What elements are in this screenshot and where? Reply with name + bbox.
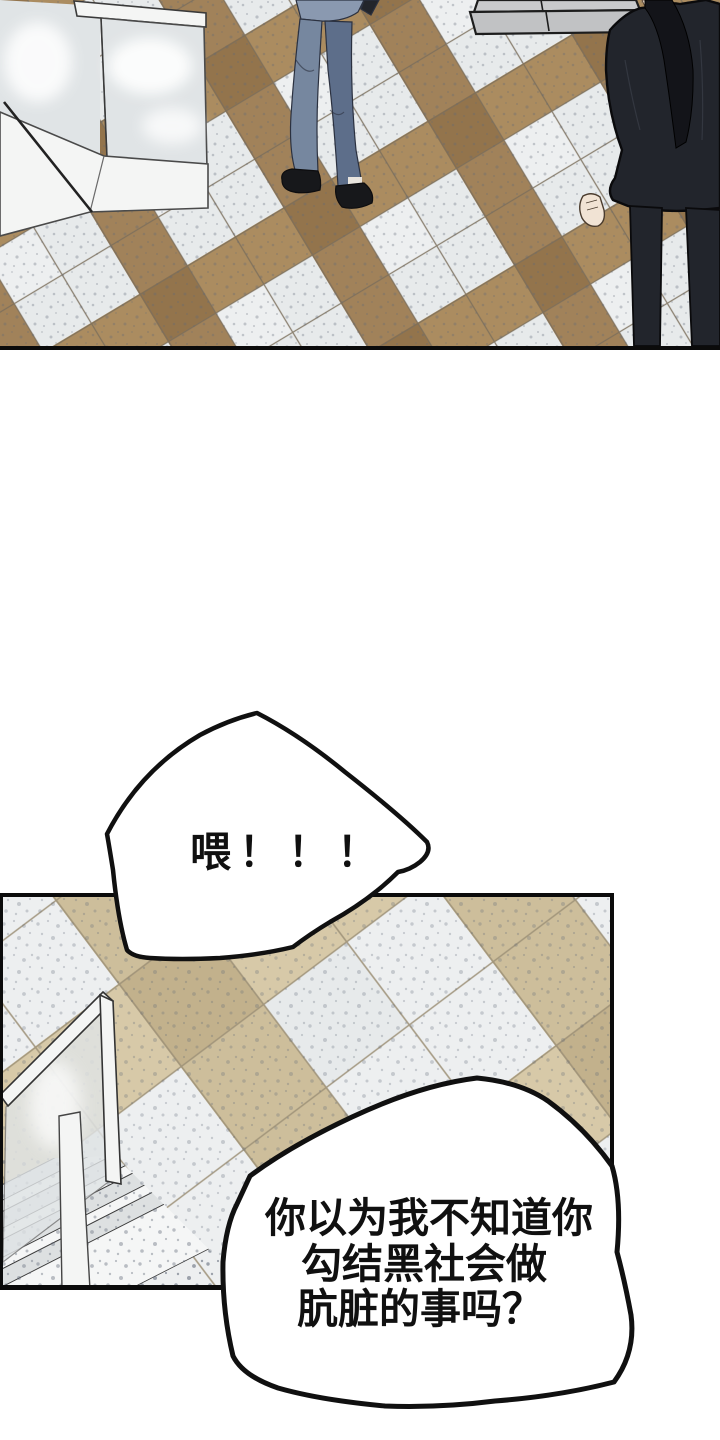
accusation-line-1: 你以为我不知道你 [264, 1194, 593, 1242]
panel-plaza-wide [0, 0, 720, 350]
black-trouser-right-leg [686, 208, 720, 346]
left-shoe [282, 169, 321, 193]
bubble-hey-text: 喂！！！ [190, 828, 386, 876]
plaza-scene [0, 0, 720, 346]
right-shoe [336, 183, 373, 208]
accusation-line-2: 勾结黑社会做 [301, 1240, 547, 1288]
speech-bubble-accusation: 你以为我不知道你 勾结黑社会做 肮脏的事吗？ [206, 1056, 650, 1422]
accusation-line-3: 肮脏的事吗？ [297, 1285, 543, 1333]
black-trouser-left-leg [630, 206, 662, 346]
speech-bubble-hey: 喂！！！ [86, 696, 462, 976]
comic-page: 喂！！！ 你以为我不知道你 勾结黑社会做 肮脏的事吗？ [0, 0, 720, 1440]
